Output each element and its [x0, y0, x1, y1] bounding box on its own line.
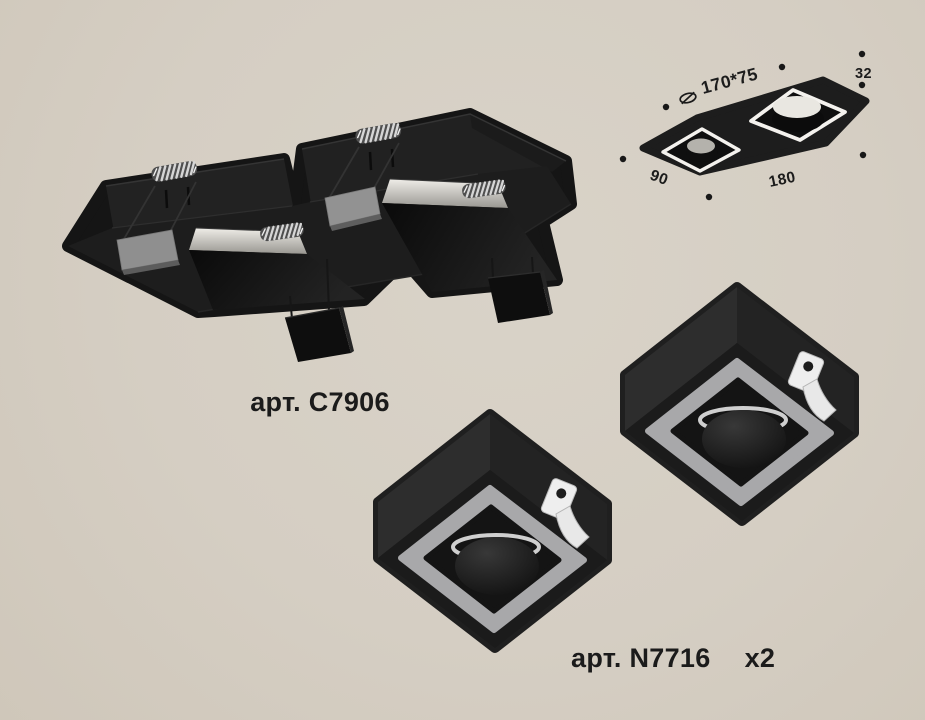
height-dimension-label: 32	[855, 66, 872, 82]
dimension-dot	[663, 104, 669, 110]
dimension-diagram: 170*75 32 90 180	[620, 51, 872, 200]
length-dimension-label: 180	[767, 169, 797, 191]
cutout-dimension-label: 170*75	[699, 64, 760, 98]
dimension-dot	[859, 82, 865, 88]
insert-illustration-top	[625, 287, 854, 521]
housing-illustration	[68, 114, 571, 362]
insert-illustration-bottom	[378, 414, 607, 648]
product-showcase: 170*75 32 90 180	[0, 0, 925, 720]
dimension-dot	[779, 64, 785, 70]
dimension-dot	[859, 51, 865, 57]
diagram-fixture	[643, 80, 866, 172]
dimension-dot	[706, 194, 712, 200]
housing-article-text: арт. C7906	[250, 387, 390, 417]
insert-article-text: арт. N7716	[571, 643, 711, 674]
dimension-dot	[620, 156, 626, 162]
insert-quantity-text: x2	[745, 643, 776, 674]
product-render: 170*75 32 90 180	[0, 0, 925, 720]
width-dimension-label: 90	[648, 167, 671, 189]
insert-article-label: арт. N7716 x2	[571, 643, 775, 674]
housing-article-label: арт. C7906	[250, 387, 390, 418]
dimension-dot	[860, 152, 866, 158]
diameter-icon	[679, 92, 697, 105]
